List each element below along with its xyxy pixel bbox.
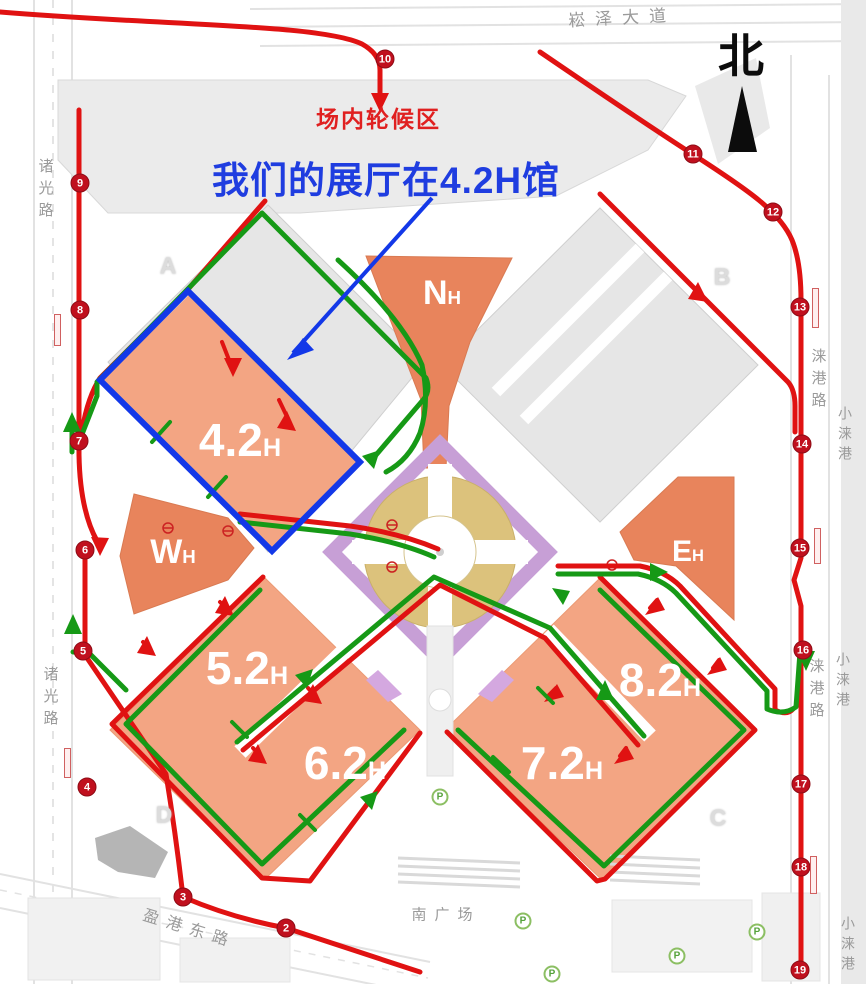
- road-label: 小涞港: [838, 916, 858, 976]
- zone-letter-c: C: [710, 805, 727, 832]
- compass-north-label: 北: [718, 20, 764, 86]
- road-label: 诸光路: [40, 666, 61, 732]
- route-stop-18: 18: [792, 858, 811, 877]
- road-label: 诸光路: [35, 158, 56, 224]
- route-stop-7: 7: [70, 432, 89, 451]
- route-stop-6: 6: [76, 541, 95, 560]
- route-stop-19: 19: [791, 961, 810, 980]
- hall-label-text: E: [672, 535, 692, 568]
- hall-label-nh: NH: [423, 276, 461, 310]
- route-stop-5: 5: [74, 642, 93, 661]
- road-label: 小涞港: [833, 652, 853, 712]
- se-quadrant: [445, 578, 755, 880]
- route-stop-15: 15: [791, 539, 810, 558]
- hall-label-eh: EH: [672, 537, 704, 567]
- hall-label-text: 5.2: [206, 642, 270, 694]
- route-stop-10: 10: [376, 50, 395, 69]
- route-stop-2: 2: [277, 919, 296, 938]
- hall-label-6-2h: 6.2H: [304, 740, 386, 786]
- hall-label-text: N: [423, 274, 448, 312]
- ne-quadrant: [442, 208, 758, 522]
- route-stop-8: 8: [71, 301, 90, 320]
- canal-band: [841, 0, 866, 984]
- zone-letter-d: D: [156, 802, 173, 829]
- hall-label-suffix: H: [263, 434, 281, 462]
- hall-label-suffix: H: [585, 757, 603, 785]
- hall-label-suffix: H: [182, 546, 196, 567]
- parking-icon: P: [515, 913, 532, 930]
- hall-label-suffix: H: [270, 662, 288, 690]
- roadside-tag: [810, 856, 817, 894]
- route-stop-4: 4: [78, 778, 97, 797]
- hall-label-text: W: [150, 533, 182, 571]
- south-corridor-node: [429, 689, 451, 711]
- route-stop-17: 17: [792, 775, 811, 794]
- annotation-headline: 我们的展厅在4.2H馆: [212, 150, 560, 204]
- zone-letter-b: B: [714, 264, 731, 291]
- parking-icon: P: [749, 924, 766, 941]
- roadside-tag: [64, 748, 71, 778]
- hall-label-suffix: H: [683, 674, 701, 702]
- hall-label-text: 7.2: [521, 737, 585, 789]
- road-label: 涞港路: [808, 348, 829, 414]
- hall-label-7-2h: 7.2H: [521, 740, 603, 786]
- hall-label-text: 4.2: [199, 414, 263, 466]
- hall-label-wh: WH: [150, 535, 196, 569]
- venue-map: 4.2H5.2H6.2H7.2H8.2HNHWHEHABCD崧泽大道诸光路诸光路…: [0, 0, 866, 984]
- hall-label-4-2h: 4.2H: [199, 417, 281, 463]
- roadside-tag: [814, 528, 821, 564]
- road-label: 南广场: [411, 904, 480, 925]
- route-stop-13: 13: [791, 298, 810, 317]
- hall-label-text: 6.2: [304, 737, 368, 789]
- route-stop-3: 3: [174, 888, 193, 907]
- parking-icon: P: [669, 948, 686, 965]
- waiting-area-label: 场内轮候区: [316, 100, 441, 134]
- hall-label-suffix: H: [448, 287, 462, 308]
- parking-icon: P: [432, 789, 449, 806]
- road-label: 小涞港: [835, 406, 855, 466]
- hall-label-suffix: H: [692, 547, 704, 565]
- hall-label-text: 8.2: [619, 654, 683, 706]
- route-stop-16: 16: [794, 641, 813, 660]
- map-svg: [0, 0, 866, 984]
- route-stop-14: 14: [793, 435, 812, 454]
- route-stop-9: 9: [71, 174, 90, 193]
- road-label: 涞港路: [806, 658, 827, 724]
- hall-label-8-2h: 8.2H: [619, 657, 701, 703]
- zone-letter-a: A: [160, 253, 177, 280]
- roadside-tag: [54, 314, 61, 346]
- route-stop-11: 11: [684, 145, 703, 164]
- roadside-tag: [812, 288, 819, 328]
- hall-label-5-2h: 5.2H: [206, 645, 288, 691]
- parking-icon: P: [544, 966, 561, 983]
- route-stop-12: 12: [764, 203, 783, 222]
- hall-label-suffix: H: [368, 757, 386, 785]
